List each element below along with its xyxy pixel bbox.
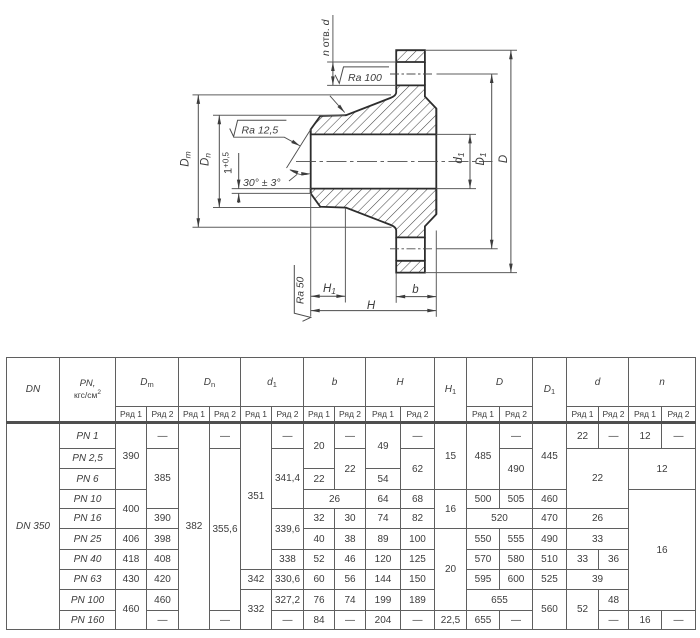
svg-text:n отв. d: n отв. d [320,18,332,56]
svg-text:1+0,5: 1+0,5 [221,151,234,173]
svg-text:30° ± 3°: 30° ± 3° [243,177,281,189]
svg-text:H1: H1 [323,283,336,296]
svg-text:Ra 100: Ra 100 [348,72,382,84]
svg-text:D1: D1 [475,152,488,165]
svg-text:d1: d1 [453,152,466,163]
svg-text:Ra 12,5: Ra 12,5 [242,125,279,137]
svg-text:Dn: Dn [200,153,213,166]
svg-text:H: H [367,300,376,312]
svg-text:b: b [412,284,419,296]
svg-text:Dm: Dm [180,151,193,166]
svg-text:D: D [498,155,510,163]
svg-text:Ra 50: Ra 50 [296,276,307,304]
